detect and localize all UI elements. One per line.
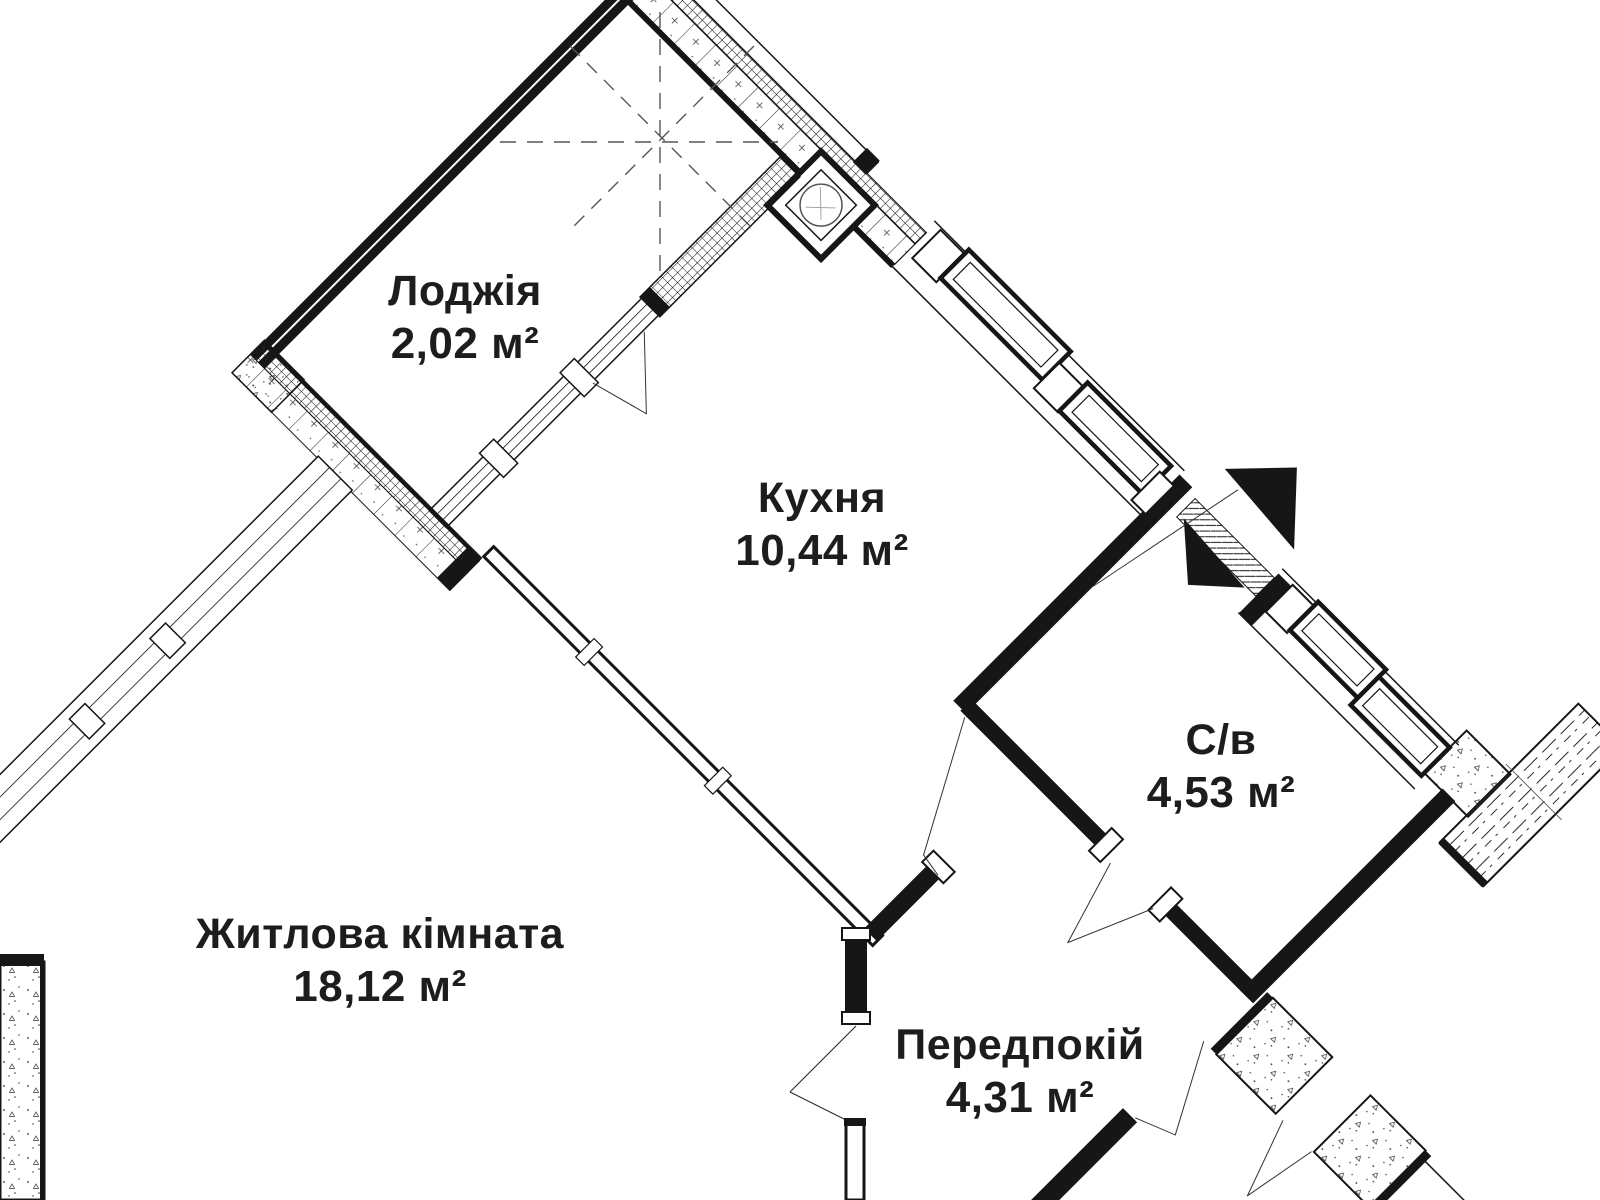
door-swing-bathroom (1049, 863, 1154, 968)
room-area: 2,02 м² (388, 317, 542, 371)
window-kitchen-band (891, 219, 1189, 517)
room-area: 10,44 м² (735, 524, 909, 578)
room-name: Лоджія (388, 265, 542, 317)
floor-plan-page: Лоджія 2,02 м² Кухня 10,44 м² С/в 4,53 м… (0, 0, 1600, 1200)
wall-living-hallway (790, 928, 870, 1200)
wall-bathroom-east (1240, 788, 1455, 1003)
wall-kitchen-bathroom (953, 475, 1192, 714)
wall-ne-masonry-band (614, 0, 927, 268)
door-swing-living (790, 1026, 856, 1120)
wall-se-piers (1156, 992, 1543, 1200)
room-area: 4,53 м² (1147, 766, 1296, 820)
wall-east-corner (1396, 661, 1600, 893)
room-area: 4,31 м² (895, 1071, 1144, 1125)
wall-loggia-kitchen (640, 157, 800, 317)
floor-plan-drawing (0, 0, 1600, 1200)
wall-left-vertical (0, 954, 44, 1200)
room-label-kitchen: Кухня 10,44 м² (735, 472, 909, 578)
wall-kitchen-living (480, 542, 887, 949)
room-label-hallway: Передпокій 4,31 м² (895, 1019, 1144, 1125)
window-living-band (0, 456, 352, 894)
room-name: Житлова кімната (196, 908, 564, 960)
room-label-living: Житлова кімната 18,12 м² (196, 908, 564, 1014)
room-name: С/в (1147, 714, 1296, 766)
room-area: 18,12 м² (196, 960, 564, 1014)
room-name: Кухня (735, 472, 909, 524)
room-label-bathroom: С/в 4,53 м² (1147, 714, 1296, 820)
room-name: Передпокій (895, 1019, 1144, 1071)
room-label-loggia: Лоджія 2,02 м² (388, 265, 542, 371)
